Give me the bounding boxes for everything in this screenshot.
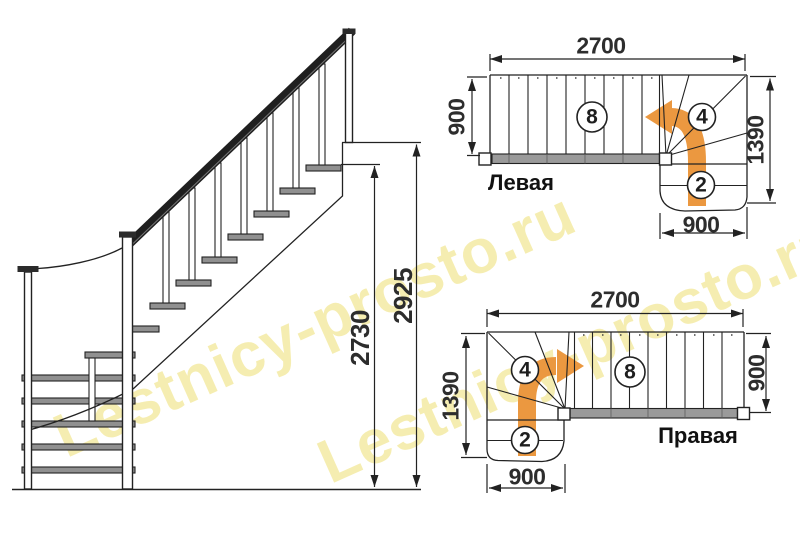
dim-flight-height-label: 2730 [347,310,373,366]
stair-elevation-drawing [12,29,421,490]
plan-right-dim-left: 1390 [440,371,463,420]
plan-right-lower-steps-badge: 2 [519,430,531,451]
plan-left-dimensions [467,54,776,239]
plan-right-name-label: Правая [658,425,738,447]
plan-right-drawing [461,309,771,493]
post-caps [18,29,356,273]
plan-right-dim-bottom: 900 [509,466,546,489]
plan-left-dim-top: 2700 [576,35,625,58]
plan-left-drawing [467,54,776,239]
elevation-winder-treads [22,352,135,473]
stair-drawing-page: Lestnicy-prosto.ru Lestnicy-prosto.ru [0,0,800,549]
plan-right-dimensions [461,309,771,493]
plan-left-dim-right: 1390 [745,115,768,164]
plan-left-flight-steps-badge: 8 [586,107,598,128]
plan-right-dim-top: 2700 [590,289,639,312]
plan-left-name-label: Левая [488,172,554,194]
plan-right-dim-right: 900 [746,355,769,392]
plan-right-winder-steps-badge: 4 [519,360,531,381]
plan-left-dim-bottom: 900 [683,214,720,237]
spiral-rail-upper-curve [38,248,122,269]
elevation-flight-treads [124,165,341,332]
dim-total-height-label: 2925 [390,268,416,324]
plan-left-winder-steps-badge: 4 [696,107,708,128]
plan-left-lower-steps-badge: 2 [695,175,707,196]
plan-right-flight-steps-badge: 8 [624,362,636,383]
plan-left-dim-left: 900 [446,99,469,136]
